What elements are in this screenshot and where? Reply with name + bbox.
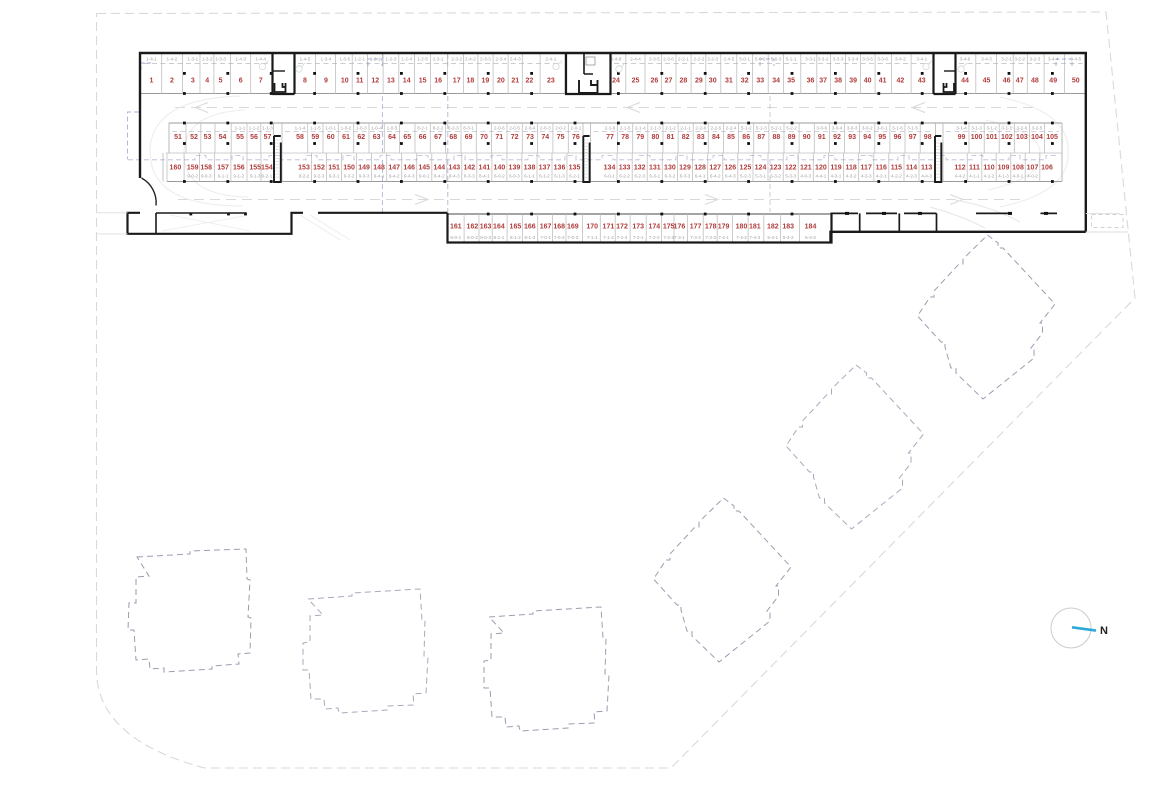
svg-text:132: 132 <box>634 164 646 171</box>
svg-text:8-0-3: 8-0-3 <box>480 235 491 240</box>
svg-text:2-4-3: 2-4-3 <box>510 57 521 62</box>
svg-text:16: 16 <box>434 78 442 85</box>
svg-text:1-3-3: 1-3-3 <box>215 57 226 62</box>
svg-text:3: 3 <box>191 78 195 85</box>
svg-text:5-0-3: 5-0-3 <box>771 57 782 62</box>
svg-text:9: 9 <box>324 78 328 85</box>
svg-text:126: 126 <box>724 164 736 171</box>
svg-text:123: 123 <box>770 164 782 171</box>
svg-text:4-4-3: 4-4-3 <box>921 173 932 178</box>
svg-text:3-4-3: 3-4-3 <box>981 57 992 62</box>
svg-text:4-4-2: 4-4-2 <box>955 173 966 178</box>
svg-text:22: 22 <box>526 78 534 85</box>
svg-text:1-3-4: 1-3-4 <box>321 57 332 62</box>
svg-text:40: 40 <box>864 78 872 85</box>
svg-text:162: 162 <box>467 223 479 230</box>
svg-text:86: 86 <box>742 134 750 141</box>
svg-text:141: 141 <box>479 164 491 171</box>
svg-text:8-4-2: 8-4-2 <box>434 173 445 178</box>
svg-text:57: 57 <box>264 134 272 141</box>
svg-text:5-3-3: 5-3-3 <box>785 173 796 178</box>
svg-text:N: N <box>1100 625 1108 637</box>
svg-text:5-4-1: 5-4-1 <box>767 235 778 240</box>
svg-text:4-3-3: 4-3-3 <box>861 173 872 178</box>
svg-text:55: 55 <box>236 134 244 141</box>
svg-text:8-4-3: 8-4-3 <box>449 173 460 178</box>
svg-text:72: 72 <box>511 134 519 141</box>
svg-text:6-3-2: 6-3-2 <box>665 173 676 178</box>
svg-text:3-2-5: 3-2-5 <box>1032 125 1043 130</box>
svg-text:139: 139 <box>509 164 521 171</box>
svg-text:2-1-6: 2-1-6 <box>605 125 616 130</box>
svg-text:176: 176 <box>674 223 686 230</box>
svg-text:4: 4 <box>205 78 209 85</box>
svg-text:2-1-5: 2-1-5 <box>620 125 631 130</box>
svg-text:7-3-3: 7-3-3 <box>705 235 716 240</box>
svg-text:120: 120 <box>815 164 827 171</box>
svg-text:7-1-1: 7-1-1 <box>587 235 598 240</box>
svg-text:130: 130 <box>664 164 676 171</box>
svg-text:3-1-6: 3-1-6 <box>892 125 903 130</box>
svg-text:3-2-3: 3-2-3 <box>1030 57 1041 62</box>
svg-text:8-0-1: 8-0-1 <box>450 235 461 240</box>
svg-text:7-3-1: 7-3-1 <box>674 235 685 240</box>
svg-text:152: 152 <box>313 164 325 171</box>
svg-text:1-3-5: 1-3-5 <box>339 57 350 62</box>
svg-text:107: 107 <box>1027 164 1039 171</box>
svg-text:170: 170 <box>586 223 598 230</box>
svg-text:7-3-2: 7-3-2 <box>690 235 701 240</box>
svg-text:9-4-2: 9-4-2 <box>389 173 400 178</box>
svg-text:6-0-1: 6-0-1 <box>604 173 615 178</box>
svg-text:2-4-5: 2-4-5 <box>724 57 735 62</box>
svg-text:9-1-3: 9-1-3 <box>250 173 261 178</box>
svg-text:5-3-1: 5-3-1 <box>755 173 766 178</box>
svg-text:56: 56 <box>250 134 258 141</box>
svg-text:3-0-3: 3-0-3 <box>847 125 858 130</box>
svg-text:119: 119 <box>830 164 841 171</box>
svg-text:179: 179 <box>718 223 730 230</box>
svg-text:7-4-3: 7-4-3 <box>749 235 760 240</box>
svg-text:114: 114 <box>906 164 917 171</box>
svg-text:136: 136 <box>554 164 566 171</box>
svg-text:171: 171 <box>603 223 615 230</box>
svg-text:160: 160 <box>170 164 182 171</box>
svg-text:73: 73 <box>526 134 534 141</box>
svg-text:124: 124 <box>755 164 767 171</box>
svg-text:2-0-3: 2-0-3 <box>540 125 551 130</box>
svg-text:13: 13 <box>387 78 395 85</box>
svg-text:17: 17 <box>453 78 461 85</box>
svg-text:2-0-2: 2-0-2 <box>555 125 566 130</box>
svg-text:27: 27 <box>665 78 673 85</box>
svg-text:5-4-3: 5-4-3 <box>805 235 816 240</box>
svg-text:148: 148 <box>373 164 385 171</box>
svg-text:102: 102 <box>1001 134 1013 141</box>
svg-text:101: 101 <box>986 134 998 141</box>
svg-text:9-3-2: 9-3-2 <box>344 173 355 178</box>
svg-text:4-1-1: 4-1-1 <box>969 173 980 178</box>
svg-text:115: 115 <box>891 164 902 171</box>
svg-text:140: 140 <box>494 164 506 171</box>
svg-text:37: 37 <box>819 78 827 85</box>
svg-text:18: 18 <box>467 78 475 85</box>
svg-text:1-2-4: 1-2-4 <box>401 57 412 62</box>
svg-text:8-4-1: 8-4-1 <box>479 173 490 178</box>
svg-text:6-1-2: 6-1-2 <box>539 173 550 178</box>
svg-text:48: 48 <box>1031 78 1039 85</box>
svg-text:21: 21 <box>511 78 519 85</box>
svg-text:108: 108 <box>1012 164 1024 171</box>
svg-text:4-2-1: 4-2-1 <box>876 173 887 178</box>
svg-text:1-1-1: 1-1-1 <box>235 125 246 130</box>
svg-text:129: 129 <box>679 164 691 171</box>
svg-text:3-3-3: 3-3-3 <box>833 57 844 62</box>
svg-text:5-1-2: 5-1-2 <box>741 125 752 130</box>
svg-text:1-1-2: 1-1-2 <box>249 125 260 130</box>
svg-text:1-1-4: 1-1-4 <box>295 125 306 130</box>
svg-text:133: 133 <box>619 164 631 171</box>
svg-text:2-4-8: 2-4-8 <box>611 57 622 62</box>
svg-text:1-1-3: 1-1-3 <box>262 125 273 130</box>
svg-text:82: 82 <box>682 134 690 141</box>
svg-text:1-4-5: 1-4-5 <box>300 57 311 62</box>
svg-text:61: 61 <box>342 134 350 141</box>
svg-text:7-2-1: 7-2-1 <box>633 235 644 240</box>
svg-text:5-4-2: 5-4-2 <box>783 235 794 240</box>
svg-text:75: 75 <box>557 134 565 141</box>
svg-text:9-3-1: 9-3-1 <box>329 173 340 178</box>
svg-text:90: 90 <box>803 134 811 141</box>
svg-text:30: 30 <box>709 78 717 85</box>
svg-text:9-4-1: 9-4-1 <box>374 173 385 178</box>
svg-text:2-2-3: 2-2-3 <box>707 57 718 62</box>
svg-text:4-0-2: 4-0-2 <box>1027 173 1038 178</box>
svg-text:8-1-3: 8-1-3 <box>524 235 535 240</box>
svg-text:163: 163 <box>480 223 492 230</box>
svg-text:164: 164 <box>493 223 505 230</box>
svg-text:4-1-2: 4-1-2 <box>984 173 995 178</box>
svg-text:88: 88 <box>773 134 781 141</box>
svg-text:7-0-3: 7-0-3 <box>567 235 578 240</box>
svg-text:177: 177 <box>690 223 702 230</box>
svg-text:20: 20 <box>497 78 505 85</box>
svg-text:7-4-1: 7-4-1 <box>718 235 729 240</box>
svg-text:3-1-4: 3-1-4 <box>956 125 967 130</box>
svg-text:181: 181 <box>749 223 761 230</box>
svg-text:4-0-3: 4-0-3 <box>800 173 811 178</box>
svg-text:1-2-5: 1-2-5 <box>417 57 428 62</box>
svg-text:3-3-1: 3-3-1 <box>805 57 816 62</box>
svg-text:91: 91 <box>818 134 826 141</box>
svg-text:1-0-5: 1-0-5 <box>387 125 398 130</box>
svg-text:2: 2 <box>170 78 174 85</box>
svg-text:9-3-3: 9-3-3 <box>359 173 370 178</box>
svg-text:3-0-4: 3-0-4 <box>832 125 843 130</box>
svg-text:6-2-3: 6-2-3 <box>634 173 645 178</box>
svg-text:128: 128 <box>694 164 706 171</box>
svg-text:2-1-4: 2-1-4 <box>635 125 646 130</box>
svg-text:1: 1 <box>150 78 154 85</box>
svg-text:23: 23 <box>547 78 555 85</box>
svg-text:34: 34 <box>772 78 780 85</box>
svg-text:173: 173 <box>632 223 644 230</box>
svg-text:182: 182 <box>767 223 779 230</box>
svg-text:1-4-1: 1-4-1 <box>146 57 157 62</box>
svg-text:8: 8 <box>303 78 307 85</box>
svg-text:15: 15 <box>419 78 427 85</box>
svg-text:4-1-3: 4-1-3 <box>998 173 1009 178</box>
svg-text:6-4-2: 6-4-2 <box>710 173 721 178</box>
svg-text:31: 31 <box>725 78 733 85</box>
svg-text:1-4-3: 1-4-3 <box>235 57 246 62</box>
svg-text:60: 60 <box>327 134 335 141</box>
svg-text:8-3-1: 8-3-1 <box>463 125 474 130</box>
svg-text:9-4-3: 9-4-3 <box>404 173 415 178</box>
svg-text:53: 53 <box>204 134 212 141</box>
svg-text:159: 159 <box>187 164 199 171</box>
svg-text:105: 105 <box>1046 134 1058 141</box>
svg-text:2-2-1: 2-2-1 <box>678 57 689 62</box>
svg-text:8-2-3: 8-2-3 <box>448 125 459 130</box>
svg-text:2-3-3: 2-3-3 <box>480 57 491 62</box>
svg-text:149: 149 <box>358 164 370 171</box>
svg-text:29: 29 <box>695 78 703 85</box>
svg-text:36: 36 <box>807 78 815 85</box>
svg-text:51: 51 <box>174 134 182 141</box>
svg-text:8-2-2: 8-2-2 <box>433 125 444 130</box>
svg-text:9-2-2: 9-2-2 <box>299 173 310 178</box>
svg-text:144: 144 <box>433 164 445 171</box>
svg-text:5-3-2: 5-3-2 <box>770 173 781 178</box>
svg-text:122: 122 <box>785 164 797 171</box>
svg-text:7-1-3: 7-1-3 <box>617 235 628 240</box>
svg-text:116: 116 <box>876 164 887 171</box>
svg-text:66: 66 <box>419 134 427 141</box>
svg-text:76: 76 <box>572 134 580 141</box>
svg-text:151: 151 <box>328 164 340 171</box>
svg-text:94: 94 <box>863 134 871 141</box>
svg-text:7-1-2: 7-1-2 <box>603 235 614 240</box>
svg-text:106: 106 <box>1041 164 1053 171</box>
svg-text:154: 154 <box>261 164 273 171</box>
svg-text:19: 19 <box>482 78 490 85</box>
svg-text:3-2-6: 3-2-6 <box>1017 125 1028 130</box>
svg-text:147: 147 <box>388 164 400 171</box>
svg-text:45: 45 <box>983 78 991 85</box>
svg-text:2-3-5: 2-3-5 <box>649 57 660 62</box>
svg-text:33: 33 <box>756 78 764 85</box>
svg-text:6-1-1: 6-1-1 <box>524 173 535 178</box>
svg-text:165: 165 <box>510 223 522 230</box>
svg-text:104: 104 <box>1031 134 1043 141</box>
svg-text:62: 62 <box>357 134 365 141</box>
svg-text:12: 12 <box>371 78 379 85</box>
svg-text:4-2-3: 4-2-3 <box>906 173 917 178</box>
svg-text:81: 81 <box>667 134 675 141</box>
svg-text:28: 28 <box>680 78 688 85</box>
svg-text:3-4-1: 3-4-1 <box>916 57 927 62</box>
svg-text:3-2-1: 3-2-1 <box>1001 57 1012 62</box>
svg-text:155: 155 <box>249 164 261 171</box>
svg-text:127: 127 <box>709 164 721 171</box>
svg-text:137: 137 <box>539 164 551 171</box>
svg-text:99: 99 <box>958 134 966 141</box>
svg-text:4-3-1: 4-3-1 <box>831 173 842 178</box>
svg-text:6-3-3: 6-3-3 <box>680 173 691 178</box>
svg-text:24: 24 <box>612 78 620 85</box>
svg-text:103: 103 <box>1016 134 1028 141</box>
svg-text:2-2-2: 2-2-2 <box>694 57 705 62</box>
svg-text:146: 146 <box>403 164 415 171</box>
svg-text:1-0-2: 1-0-2 <box>341 125 352 130</box>
svg-text:47: 47 <box>1016 78 1024 85</box>
svg-text:41: 41 <box>879 78 887 85</box>
svg-text:9-1-2: 9-1-2 <box>233 173 244 178</box>
svg-text:113: 113 <box>921 164 932 171</box>
svg-text:77: 77 <box>606 134 614 141</box>
svg-text:59: 59 <box>311 134 319 141</box>
svg-text:3-4-6: 3-4-6 <box>960 57 971 62</box>
svg-text:71: 71 <box>495 134 503 141</box>
svg-text:2-0-6: 2-0-6 <box>494 125 505 130</box>
svg-text:1-2-3: 1-2-3 <box>386 57 397 62</box>
svg-text:118: 118 <box>845 164 856 171</box>
svg-text:5-1-3: 5-1-3 <box>756 125 767 130</box>
svg-text:158: 158 <box>200 164 212 171</box>
svg-text:157: 157 <box>217 164 229 171</box>
svg-text:2-0-1: 2-0-1 <box>571 125 582 130</box>
svg-text:42: 42 <box>897 78 905 85</box>
svg-text:3-3-6: 3-3-6 <box>877 57 888 62</box>
svg-text:6: 6 <box>239 78 243 85</box>
svg-text:50: 50 <box>1072 78 1080 85</box>
svg-text:109: 109 <box>998 164 1010 171</box>
svg-text:2-2-4: 2-2-4 <box>726 125 737 130</box>
svg-text:95: 95 <box>878 134 886 141</box>
svg-text:43: 43 <box>918 78 926 85</box>
svg-text:161: 161 <box>450 223 462 230</box>
svg-text:2-2-6: 2-2-6 <box>695 125 706 130</box>
svg-text:39: 39 <box>849 78 857 85</box>
svg-text:2-1-3: 2-1-3 <box>650 125 661 130</box>
svg-text:87: 87 <box>757 134 765 141</box>
svg-text:2-1-2: 2-1-2 <box>665 125 676 130</box>
svg-text:1-0-3: 1-0-3 <box>356 125 367 130</box>
svg-text:78: 78 <box>621 134 629 141</box>
svg-text:63: 63 <box>373 134 381 141</box>
svg-text:9-0-1: 9-0-1 <box>419 173 430 178</box>
svg-text:9-2-1: 9-2-1 <box>262 173 273 178</box>
svg-text:68: 68 <box>449 134 457 141</box>
svg-text:3-2-2: 3-2-2 <box>1014 57 1025 62</box>
svg-text:7-2-2: 7-2-2 <box>649 235 660 240</box>
svg-text:52: 52 <box>190 134 198 141</box>
svg-text:156: 156 <box>233 164 245 171</box>
svg-text:167: 167 <box>540 223 552 230</box>
svg-text:14: 14 <box>403 78 411 85</box>
svg-text:153: 153 <box>298 164 310 171</box>
svg-text:6-0-2: 6-0-2 <box>494 173 505 178</box>
svg-text:166: 166 <box>524 223 536 230</box>
svg-text:9-0-2: 9-0-2 <box>187 173 198 178</box>
svg-text:96: 96 <box>894 134 902 141</box>
svg-text:143: 143 <box>448 164 460 171</box>
svg-text:5-2-3: 5-2-3 <box>740 173 751 178</box>
svg-text:2-3-2: 2-3-2 <box>451 57 462 62</box>
svg-text:100: 100 <box>971 134 983 141</box>
svg-text:7-0-2: 7-0-2 <box>554 235 565 240</box>
svg-text:32: 32 <box>741 78 749 85</box>
svg-text:67: 67 <box>434 134 442 141</box>
svg-text:5: 5 <box>219 78 223 85</box>
svg-text:6-4-3: 6-4-3 <box>725 173 736 178</box>
svg-text:9-1-1: 9-1-1 <box>218 173 229 178</box>
svg-text:7-2-3: 7-2-3 <box>663 235 674 240</box>
svg-text:131: 131 <box>649 164 661 171</box>
svg-text:79: 79 <box>636 134 644 141</box>
svg-text:138: 138 <box>524 164 536 171</box>
svg-text:3-3-4: 3-3-4 <box>848 57 859 62</box>
svg-text:1-2-1: 1-2-1 <box>354 57 365 62</box>
svg-text:169: 169 <box>567 223 579 230</box>
svg-text:1-3-1: 1-3-1 <box>187 57 198 62</box>
svg-text:2-4-2: 2-4-2 <box>465 57 476 62</box>
svg-text:8-0-2: 8-0-2 <box>467 235 478 240</box>
svg-text:111: 111 <box>969 164 980 171</box>
svg-text:93: 93 <box>848 134 856 141</box>
svg-text:135: 135 <box>569 164 581 171</box>
svg-text:134: 134 <box>604 164 616 171</box>
svg-text:6-3-1: 6-3-1 <box>649 173 660 178</box>
svg-text:2-1-1: 2-1-1 <box>680 125 691 130</box>
svg-text:3-4-2: 3-4-2 <box>895 57 906 62</box>
svg-text:69: 69 <box>465 134 473 141</box>
svg-text:35: 35 <box>787 78 795 85</box>
svg-text:2-4-1: 2-4-1 <box>546 57 557 62</box>
svg-text:6-0-3: 6-0-3 <box>509 173 520 178</box>
svg-text:121: 121 <box>800 164 812 171</box>
svg-text:1-0-1: 1-0-1 <box>325 125 336 130</box>
svg-text:1-3-2: 1-3-2 <box>202 57 213 62</box>
svg-text:54: 54 <box>219 134 227 141</box>
svg-text:6-2-2: 6-2-2 <box>619 173 630 178</box>
svg-text:2-2-5: 2-2-5 <box>711 125 722 130</box>
svg-text:5-2-2: 5-2-2 <box>786 125 797 130</box>
svg-text:70: 70 <box>480 134 488 141</box>
svg-text:6-4-1: 6-4-1 <box>695 173 706 178</box>
svg-text:150: 150 <box>343 164 355 171</box>
svg-text:1-0-4: 1-0-4 <box>371 125 382 130</box>
svg-text:7-0-1: 7-0-1 <box>540 235 551 240</box>
svg-text:7-4-2: 7-4-2 <box>736 235 747 240</box>
svg-text:112: 112 <box>954 164 965 171</box>
svg-text:110: 110 <box>983 164 994 171</box>
svg-text:4-3-2: 4-3-2 <box>846 173 857 178</box>
svg-text:46: 46 <box>1003 78 1011 85</box>
svg-text:65: 65 <box>403 134 411 141</box>
svg-text:9-2-3: 9-2-3 <box>314 173 325 178</box>
svg-text:7: 7 <box>259 78 263 85</box>
svg-text:3-3-5: 3-3-5 <box>862 57 873 62</box>
svg-text:85: 85 <box>727 134 735 141</box>
svg-text:4-2-2: 4-2-2 <box>891 173 902 178</box>
svg-text:3-0-2: 3-0-2 <box>862 125 873 130</box>
svg-text:180: 180 <box>736 223 748 230</box>
svg-text:8-1-1: 8-1-1 <box>494 235 505 240</box>
svg-text:6-1-3: 6-1-3 <box>554 173 565 178</box>
svg-text:3-1-3: 3-1-3 <box>971 125 982 130</box>
